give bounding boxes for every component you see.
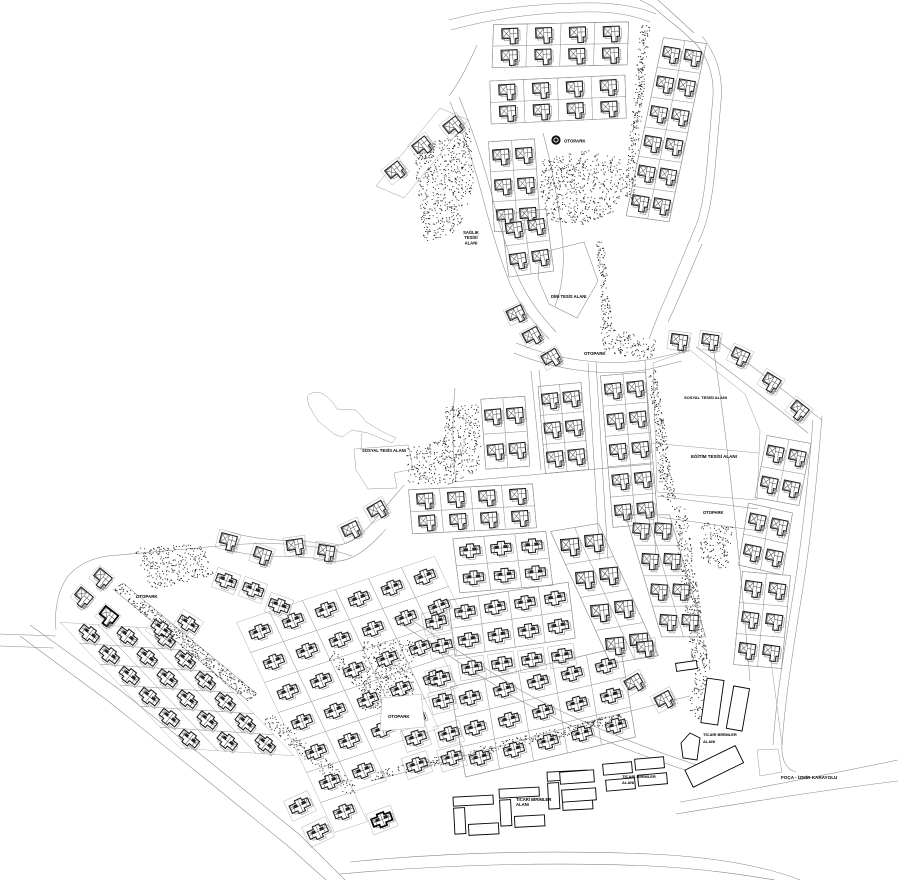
svg-text:OTOPARK: OTOPARK <box>703 510 724 515</box>
svg-text:TİCARİ BİRİMLER: TİCARİ BİRİMLER <box>703 732 737 737</box>
svg-text:OTOPARK: OTOPARK <box>388 714 410 719</box>
svg-text:OTOPARK: OTOPARK <box>584 351 606 356</box>
svg-text:ALANI: ALANI <box>703 739 715 744</box>
svg-text:FOÇA - İZMİR KARAYOLU: FOÇA - İZMİR KARAYOLU <box>781 774 838 780</box>
svg-text:SOSYAL TESİSİ ALANI: SOSYAL TESİSİ ALANI <box>684 395 727 400</box>
svg-text:ALANI: ALANI <box>516 802 529 807</box>
svg-text:SOSYAL TESİS ALANI: SOSYAL TESİS ALANI <box>362 448 406 453</box>
svg-text:OTOPARK: OTOPARK <box>136 594 158 599</box>
svg-text:TESİSİ: TESİSİ <box>464 235 477 240</box>
svg-text:TİCARİ BİRİMLER: TİCARİ BİRİMLER <box>622 774 656 779</box>
svg-text:ALANI: ALANI <box>465 241 478 246</box>
svg-text:DİNİ TESİS ALANI: DİNİ TESİS ALANI <box>551 294 586 299</box>
svg-text:EĞİTİM TESİSİ ALANI: EĞİTİM TESİSİ ALANI <box>691 452 737 459</box>
svg-text:OTOPARK: OTOPARK <box>564 139 586 144</box>
svg-text:ALANI: ALANI <box>622 780 634 785</box>
